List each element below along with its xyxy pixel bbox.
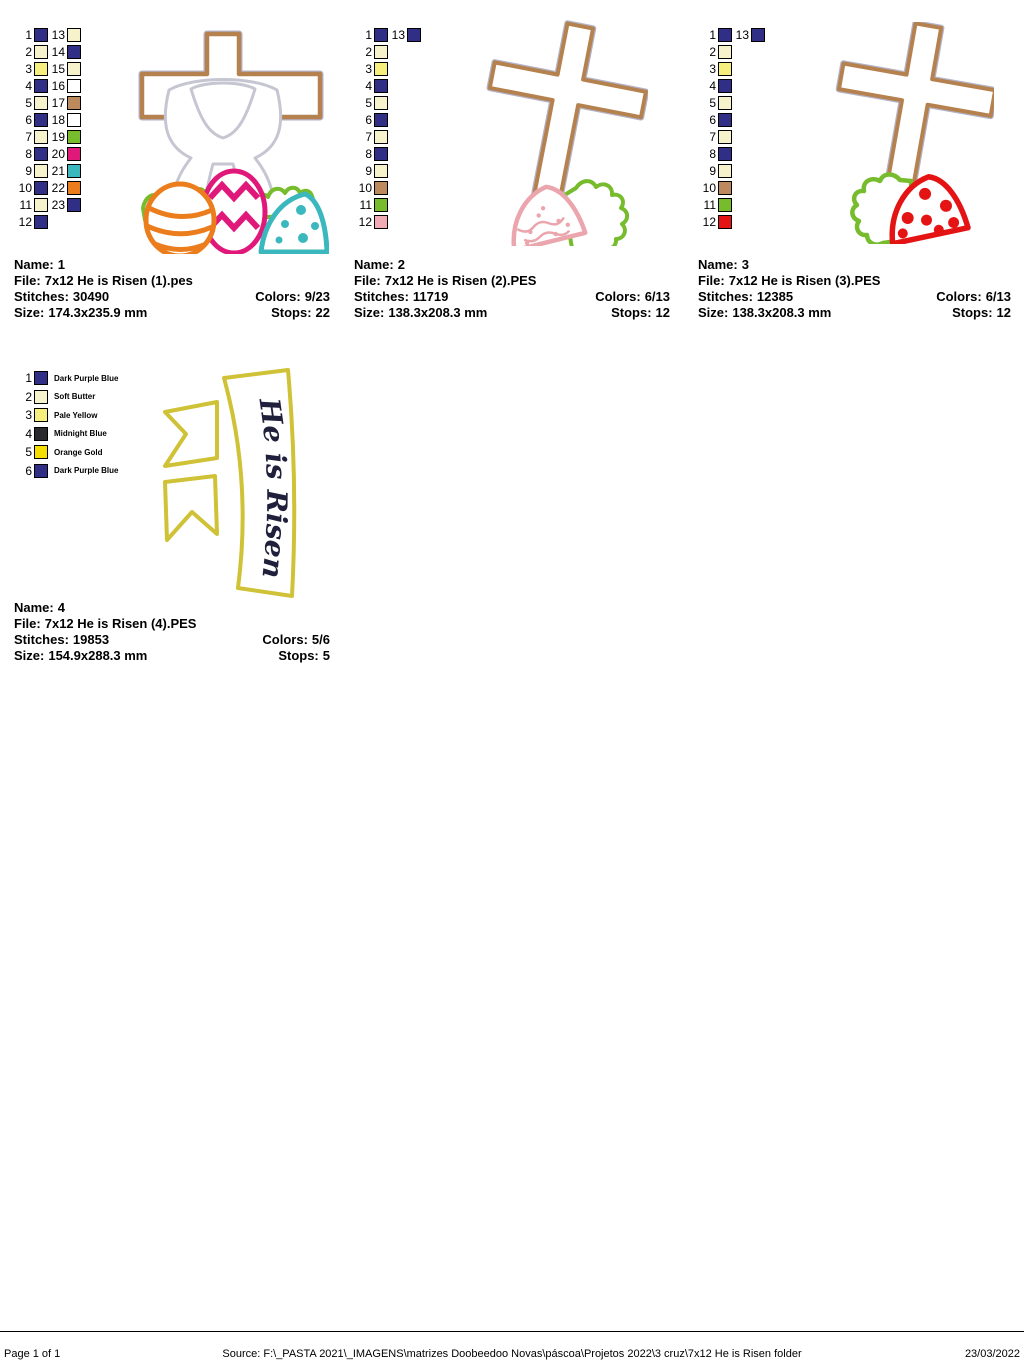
color-number: 11 (15, 199, 32, 211)
color-swatch (718, 130, 732, 144)
color-number: 8 (15, 148, 32, 160)
color-number: 6 (355, 114, 372, 126)
palette-row: 3Pale Yellow (15, 406, 118, 425)
design-1-info: Name:1 File:7x12 He is Risen (1).pes Sti… (14, 257, 330, 321)
stitches-value: 12385 (757, 289, 793, 305)
color-swatch (67, 62, 81, 76)
palette-row: 921 (15, 162, 81, 179)
source-path: Source: F:\_PASTA 2021\_IMAGENS\matrizes… (0, 1348, 1024, 1360)
name-label: Name: (354, 257, 394, 273)
stops-label: Stops: (278, 648, 318, 664)
palette-row: 214 (15, 43, 81, 60)
palette-row: 1Dark Purple Blue (15, 369, 118, 388)
palette-row: 9 (699, 162, 765, 179)
color-number: 5 (15, 446, 32, 458)
size-value: 174.3x235.9 mm (48, 305, 147, 321)
palette-row: 1022 (15, 179, 81, 196)
color-swatch (34, 215, 48, 229)
color-number: 18 (48, 114, 65, 126)
color-number: 4 (15, 80, 32, 92)
color-swatch (67, 147, 81, 161)
color-number: 2 (15, 46, 32, 58)
color-swatch (407, 28, 421, 42)
colors-label: Colors: (936, 289, 982, 305)
color-swatch (34, 427, 48, 441)
palette-row: 5 (699, 94, 765, 111)
stops-label: Stops: (952, 305, 992, 321)
color-number: 17 (48, 97, 65, 109)
design-4-info: Name:4 File:7x12 He is Risen (4).PES Sti… (14, 600, 330, 664)
design-3-artwork-tilted-cross-red-egg (822, 22, 994, 244)
color-number: 12 (355, 216, 372, 228)
color-swatch (718, 96, 732, 110)
color-number: 6 (15, 114, 32, 126)
color-number: 5 (699, 97, 716, 109)
egg-orange-striped (146, 184, 214, 254)
palette-row: 113 (355, 26, 421, 43)
palette-row: 5Orange Gold (15, 443, 118, 462)
color-number: 1 (355, 29, 372, 41)
color-number: 13 (732, 29, 749, 41)
color-swatch (718, 113, 732, 127)
color-number: 1 (699, 29, 716, 41)
size-value: 138.3x208.3 mm (388, 305, 487, 321)
palette-row: 11 (355, 196, 421, 213)
color-swatch (34, 198, 48, 212)
colors-value: 6/13 (986, 289, 1011, 305)
color-number: 3 (15, 63, 32, 75)
color-number: 16 (48, 80, 65, 92)
palette-row: 2 (699, 43, 765, 60)
design-3-color-palette: 11323456789101112 (699, 26, 765, 230)
color-number: 4 (355, 80, 372, 92)
palette-row: 7 (699, 128, 765, 145)
color-number: 3 (15, 409, 32, 421)
color-number: 5 (15, 97, 32, 109)
color-number: 7 (355, 131, 372, 143)
palette-row: 4Midnight Blue (15, 425, 118, 444)
color-swatch (34, 147, 48, 161)
design-4-color-palette: 1Dark Purple Blue2Soft Butter3Pale Yello… (15, 369, 118, 480)
palette-row: 719 (15, 128, 81, 145)
size-label: Size: (698, 305, 728, 321)
file-value: 7x12 He is Risen (4).PES (45, 616, 197, 632)
color-number: 22 (48, 182, 65, 194)
palette-row: 10 (355, 179, 421, 196)
color-number: 4 (15, 428, 32, 440)
name-value: 3 (742, 257, 749, 273)
name-label: Name: (698, 257, 738, 273)
color-swatch (34, 79, 48, 93)
color-swatch (374, 215, 388, 229)
stitches-value: 30490 (73, 289, 109, 305)
color-name: Dark Purple Blue (54, 466, 118, 475)
color-swatch (67, 96, 81, 110)
color-swatch (67, 130, 81, 144)
color-number: 21 (48, 165, 65, 177)
color-swatch (67, 79, 81, 93)
palette-row: 4 (699, 77, 765, 94)
palette-row: 3 (355, 60, 421, 77)
colors-value: 6/13 (645, 289, 670, 305)
palette-row: 6Dark Purple Blue (15, 462, 118, 481)
palette-row: 6 (355, 111, 421, 128)
color-swatch (374, 181, 388, 195)
size-label: Size: (14, 648, 44, 664)
stitches-value: 11719 (413, 289, 448, 305)
color-swatch (34, 28, 48, 42)
color-swatch (34, 96, 48, 110)
color-number: 9 (699, 165, 716, 177)
print-date: 23/03/2022 (965, 1348, 1020, 1360)
color-swatch (718, 198, 732, 212)
color-swatch (67, 181, 81, 195)
colors-label: Colors: (595, 289, 641, 305)
color-swatch (34, 164, 48, 178)
name-value: 1 (58, 257, 65, 273)
color-swatch (67, 113, 81, 127)
size-value: 154.9x288.3 mm (48, 648, 147, 664)
color-number: 3 (699, 63, 716, 75)
color-swatch (34, 181, 48, 195)
color-swatch (718, 45, 732, 59)
footer-divider (0, 1331, 1024, 1332)
color-number: 12 (699, 216, 716, 228)
color-swatch (718, 215, 732, 229)
stitches-value: 19853 (73, 632, 109, 648)
file-value: 7x12 He is Risen (1).pes (45, 273, 193, 289)
color-swatch (374, 62, 388, 76)
color-swatch (374, 79, 388, 93)
color-name: Dark Purple Blue (54, 374, 118, 383)
color-number: 20 (48, 148, 65, 160)
stops-value: 5 (323, 648, 330, 664)
color-number: 2 (355, 46, 372, 58)
color-swatch (374, 113, 388, 127)
color-swatch (67, 164, 81, 178)
color-number: 2 (699, 46, 716, 58)
palette-row: 5 (355, 94, 421, 111)
color-swatch (374, 147, 388, 161)
palette-row: 820 (15, 145, 81, 162)
print-preview-page: { "labels": { "name": "Name:", "file": "… (0, 0, 1024, 1370)
color-number: 6 (15, 465, 32, 477)
color-number: 13 (48, 29, 65, 41)
color-number: 11 (699, 199, 716, 211)
palette-row: 113 (699, 26, 765, 43)
palette-row: 618 (15, 111, 81, 128)
color-number: 10 (699, 182, 716, 194)
file-value: 7x12 He is Risen (2).PES (385, 273, 537, 289)
color-number: 10 (355, 182, 372, 194)
palette-row: 7 (355, 128, 421, 145)
color-swatch (718, 147, 732, 161)
color-swatch (34, 464, 48, 478)
color-number: 11 (355, 199, 372, 211)
color-name: Pale Yellow (54, 411, 97, 420)
color-swatch (67, 28, 81, 42)
palette-row: 517 (15, 94, 81, 111)
color-number: 9 (355, 165, 372, 177)
color-swatch (718, 62, 732, 76)
file-label: File: (14, 273, 41, 289)
design-2-color-palette: 11323456789101112 (355, 26, 421, 230)
color-swatch (67, 45, 81, 59)
colors-label: Colors: (262, 632, 308, 648)
name-label: Name: (14, 600, 54, 616)
palette-row: 416 (15, 77, 81, 94)
design-2-info: Name:2 File:7x12 He is Risen (2).PES Sti… (354, 257, 670, 321)
color-swatch (718, 164, 732, 178)
color-swatch (374, 198, 388, 212)
color-swatch (374, 45, 388, 59)
size-value: 138.3x208.3 mm (732, 305, 831, 321)
color-swatch (374, 130, 388, 144)
design-3-info: Name:3 File:7x12 He is Risen (3).PES Sti… (698, 257, 1011, 321)
color-swatch (718, 28, 732, 42)
stitches-label: Stitches: (14, 289, 69, 305)
palette-row: 2 (355, 43, 421, 60)
palette-row: 8 (355, 145, 421, 162)
color-number: 3 (355, 63, 372, 75)
stitches-label: Stitches: (354, 289, 409, 305)
stops-value: 22 (316, 305, 330, 321)
stops-label: Stops: (271, 305, 311, 321)
palette-row: 6 (699, 111, 765, 128)
color-swatch (374, 164, 388, 178)
colors-label: Colors: (255, 289, 301, 305)
name-label: Name: (14, 257, 54, 273)
color-swatch (718, 79, 732, 93)
palette-row: 8 (699, 145, 765, 162)
color-name: Soft Butter (54, 392, 95, 401)
color-number: 14 (48, 46, 65, 58)
file-label: File: (14, 616, 41, 632)
color-swatch (34, 371, 48, 385)
stitches-label: Stitches: (14, 632, 69, 648)
colors-value: 9/23 (305, 289, 330, 305)
color-swatch (34, 130, 48, 144)
colors-value: 5/6 (312, 632, 330, 648)
color-number: 19 (48, 131, 65, 143)
stops-value: 12 (997, 305, 1011, 321)
palette-row: 2Soft Butter (15, 388, 118, 407)
size-label: Size: (354, 305, 384, 321)
palette-row: 9 (355, 162, 421, 179)
color-swatch (374, 28, 388, 42)
color-number: 23 (48, 199, 65, 211)
color-number: 13 (388, 29, 405, 41)
palette-row: 315 (15, 60, 81, 77)
color-number: 7 (15, 131, 32, 143)
name-value: 4 (58, 600, 65, 616)
file-label: File: (354, 273, 381, 289)
color-swatch (34, 408, 48, 422)
color-swatch (34, 445, 48, 459)
color-number: 6 (699, 114, 716, 126)
design-2-artwork-tilted-cross-pink-egg (468, 20, 648, 246)
palette-row: 12 (355, 213, 421, 230)
color-number: 2 (15, 391, 32, 403)
color-swatch (34, 113, 48, 127)
color-number: 15 (48, 63, 65, 75)
color-swatch (374, 96, 388, 110)
palette-row: 12 (699, 213, 765, 230)
design-1-artwork-cross-with-robe-and-eggs (133, 28, 329, 254)
color-number: 4 (699, 80, 716, 92)
palette-row: 1123 (15, 196, 81, 213)
color-number: 8 (355, 148, 372, 160)
palette-row: 4 (355, 77, 421, 94)
file-value: 7x12 He is Risen (3).PES (729, 273, 881, 289)
stitches-label: Stitches: (698, 289, 753, 305)
stops-label: Stops: (611, 305, 651, 321)
palette-row: 10 (699, 179, 765, 196)
color-name: Orange Gold (54, 448, 102, 457)
color-swatch (751, 28, 765, 42)
color-number: 9 (15, 165, 32, 177)
design-1-color-palette: 1132143154165176187198209211022112312 (15, 26, 81, 230)
size-label: Size: (14, 305, 44, 321)
color-name: Midnight Blue (54, 429, 107, 438)
design-4-artwork-he-is-risen-banner: He is Risen (148, 362, 338, 602)
color-number: 5 (355, 97, 372, 109)
name-value: 2 (398, 257, 405, 273)
color-number: 12 (15, 216, 32, 228)
color-swatch (34, 62, 48, 76)
palette-row: 11 (699, 196, 765, 213)
palette-row: 12 (15, 213, 81, 230)
color-swatch (34, 390, 48, 404)
color-number: 1 (15, 372, 32, 384)
stops-value: 12 (656, 305, 670, 321)
file-label: File: (698, 273, 725, 289)
color-number: 10 (15, 182, 32, 194)
banner-ribbon-tails (165, 402, 217, 540)
color-number: 8 (699, 148, 716, 160)
color-swatch (67, 198, 81, 212)
color-swatch (34, 45, 48, 59)
color-swatch (718, 181, 732, 195)
palette-row: 113 (15, 26, 81, 43)
color-number: 7 (699, 131, 716, 143)
color-number: 1 (15, 29, 32, 41)
palette-row: 3 (699, 60, 765, 77)
